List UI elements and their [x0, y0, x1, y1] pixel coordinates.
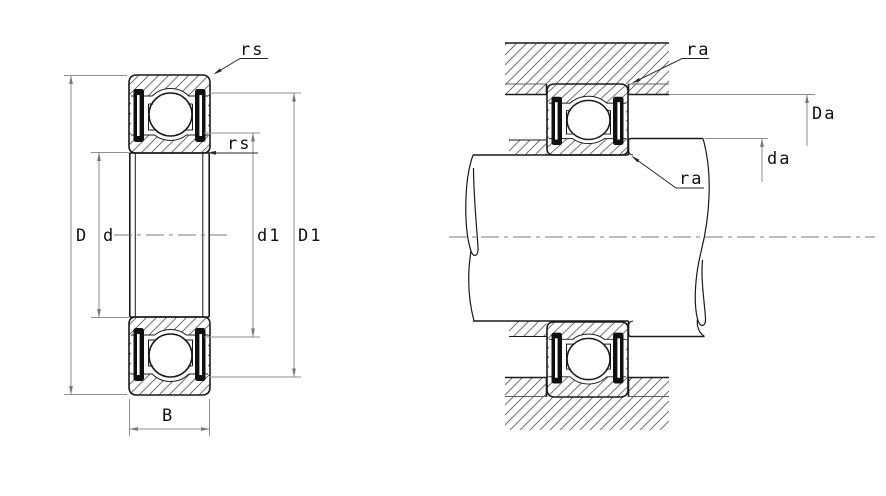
dim-label-D1: D1 [298, 226, 322, 246]
ball [149, 93, 192, 136]
callout-label-rs-outer: rs [240, 40, 264, 60]
bearing-drawing-page: D d d1 D1 B rs rs [0, 0, 886, 496]
dim-label-d: d [103, 226, 115, 246]
dim-label-da: da [767, 149, 791, 169]
dim-label-d1: d1 [257, 226, 281, 246]
dim-label-Da: Da [812, 104, 836, 124]
dim-label-D: D [76, 226, 88, 246]
ball [149, 334, 192, 377]
dim-label-B: B [162, 406, 174, 426]
bearing-section-bottom [547, 322, 628, 397]
callout-label-ra-shaft: ra [679, 169, 703, 189]
ball [567, 338, 610, 379]
shaft-abutment-upper [509, 140, 547, 155]
callout-label-ra-housing: ra [686, 40, 710, 60]
left-view-cross-section: D d d1 D1 B rs rs [64, 40, 322, 436]
bearing-section-top [547, 84, 628, 155]
bearing-section-top [129, 75, 210, 153]
ball [567, 100, 610, 139]
rs-outer-leader [215, 59, 268, 74]
bearing-section-bottom [129, 317, 210, 395]
technical-drawing-canvas: D d d1 D1 B rs rs [0, 0, 886, 496]
callout-label-rs-inner: rs [227, 134, 251, 154]
shaft-abutment-lower [509, 321, 547, 337]
right-view-mounting: ra ra Da da [449, 40, 875, 430]
